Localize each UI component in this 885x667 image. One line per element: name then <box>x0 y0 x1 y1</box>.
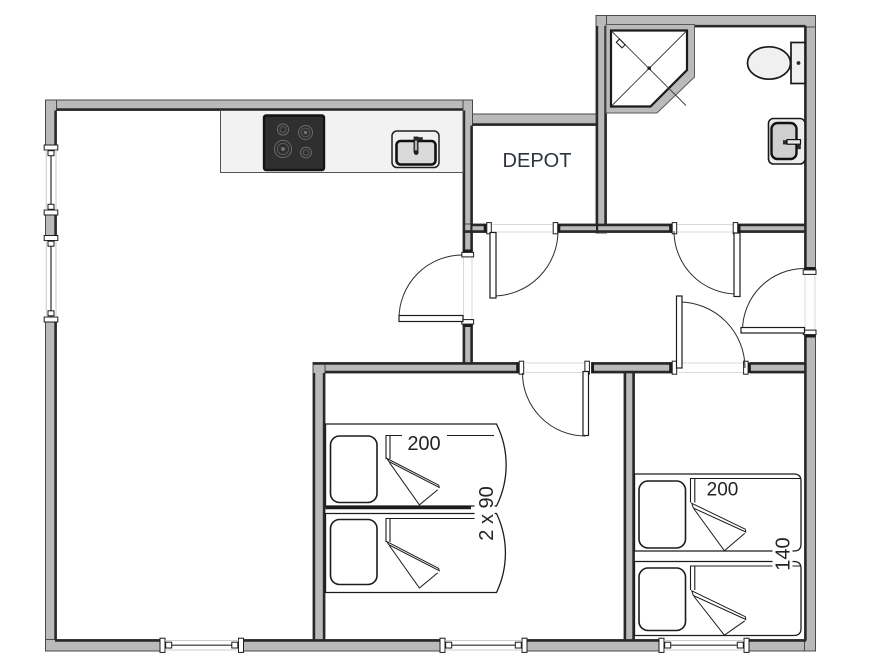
svg-text:200: 200 <box>707 480 739 501</box>
svg-text:2 x 90: 2 x 90 <box>476 486 498 540</box>
svg-text:140: 140 <box>773 537 795 570</box>
svg-text:200: 200 <box>407 433 440 455</box>
svg-text:DEPOT: DEPOT <box>503 150 572 172</box>
